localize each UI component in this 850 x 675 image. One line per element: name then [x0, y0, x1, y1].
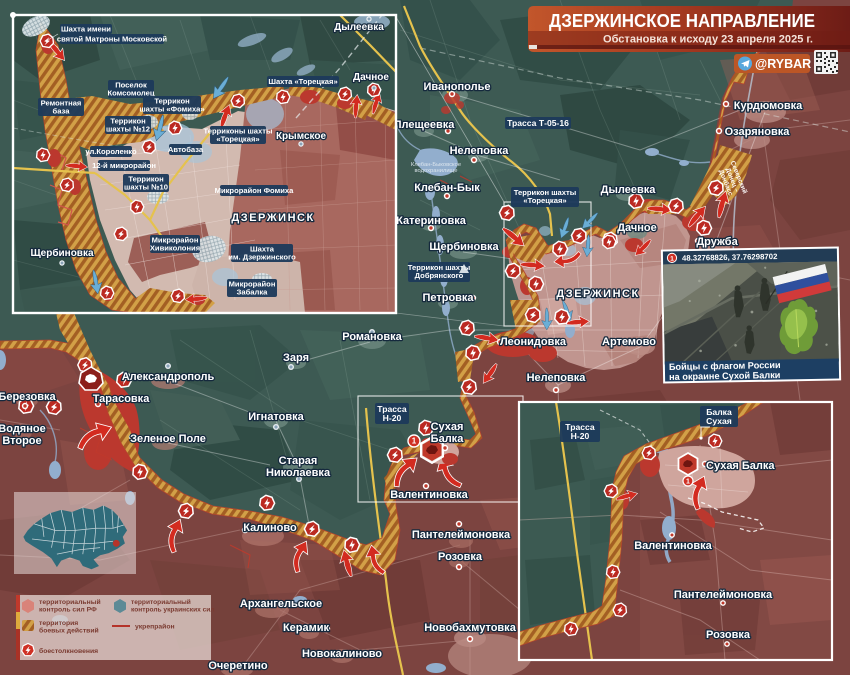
svg-text:ДЗЕРЖИНСК: ДЗЕРЖИНСК — [556, 288, 639, 300]
svg-text:Старая: Старая — [279, 455, 318, 467]
svg-text:Калиново: Калиново — [243, 522, 297, 534]
svg-text:Новобахмутовка: Новобахмутовка — [424, 622, 517, 634]
svg-text:Пантелеймоновка: Пантелеймоновка — [412, 529, 511, 541]
svg-text:Романовка: Романовка — [342, 331, 402, 343]
svg-text:контроль сил РФ: контроль сил РФ — [39, 607, 97, 614]
svg-text:Курдюмовка: Курдюмовка — [734, 100, 803, 112]
svg-text:Клебан-Бык: Клебан-Бык — [414, 182, 480, 194]
svg-text:Н-20: Н-20 — [571, 431, 590, 441]
svg-text:Автобаза: Автобаза — [168, 145, 204, 154]
svg-text:Нелеповка: Нелеповка — [450, 145, 510, 157]
svg-text:Сухая Балка: Сухая Балка — [706, 460, 775, 472]
svg-text:Артемово: Артемово — [602, 336, 656, 348]
svg-text:1: 1 — [686, 478, 690, 485]
svg-text:Очеретино: Очеретино — [208, 660, 268, 672]
svg-text:Зеленое Поле: Зеленое Поле — [130, 433, 206, 445]
svg-text:Щербиновка: Щербиновка — [429, 241, 499, 253]
svg-text:ДЗЕРЖИНСКОЕ НАПРАВЛЕНИЕ: ДЗЕРЖИНСКОЕ НАПРАВЛЕНИЕ — [549, 11, 815, 31]
svg-text:«Торецкая»: «Торецкая» — [523, 196, 566, 205]
svg-text:Водяное: Водяное — [0, 423, 46, 435]
svg-text:Второе: Второе — [2, 435, 41, 447]
svg-text:Игнатовка: Игнатовка — [248, 411, 304, 423]
svg-text:Розовка: Розовка — [706, 629, 751, 641]
svg-text:Розовка: Розовка — [438, 551, 483, 563]
svg-text:на окраине Сухой Балки: на окраине Сухой Балки — [669, 370, 781, 382]
svg-text:Дылеевка: Дылеевка — [601, 184, 657, 196]
svg-text:Катериновка: Катериновка — [396, 215, 467, 227]
svg-text:«Торецкая»: «Торецкая» — [216, 135, 259, 144]
svg-text:Шахта «Торецкая»: Шахта «Торецкая» — [268, 77, 337, 86]
svg-text:Микрорайон Фомиха: Микрорайон Фомиха — [215, 186, 294, 195]
svg-text:Керамик: Керамик — [283, 622, 330, 634]
svg-text:1: 1 — [670, 256, 674, 263]
svg-text:территориальный: территориальный — [39, 598, 101, 606]
svg-text:шахты «Фомиха»: шахты «Фомиха» — [139, 105, 204, 114]
svg-text:Дачное: Дачное — [353, 72, 389, 83]
svg-text:12-й микрорайон: 12-й микрорайон — [92, 161, 156, 170]
svg-text:Добрянского: Добрянского — [415, 271, 464, 280]
svg-text:Сухая: Сухая — [706, 416, 732, 426]
svg-text:боестолкновения: боестолкновения — [39, 647, 98, 655]
svg-text:Александрополь: Александрополь — [122, 371, 215, 383]
svg-text:Архангельское: Архангельское — [240, 598, 322, 610]
svg-text:Плещеевка: Плещеевка — [394, 119, 456, 131]
svg-text:Валентиновка: Валентиновка — [390, 489, 468, 501]
svg-text:база: база — [53, 107, 71, 116]
svg-text:боевых действий: боевых действий — [39, 627, 99, 635]
svg-text:Иванополье: Иванополье — [424, 81, 491, 93]
svg-text:Щербиновка: Щербиновка — [30, 247, 93, 259]
svg-text:Обстановка к исходу 23 апреля: Обстановка к исходу 23 апреля 2025 г. — [603, 34, 813, 46]
svg-text:Валентиновка: Валентиновка — [634, 540, 712, 552]
svg-text:контроль украинских сил: контроль украинских сил — [131, 607, 215, 614]
svg-text:территория: территория — [39, 620, 78, 627]
svg-text:Дружба: Дружба — [696, 236, 738, 248]
svg-text:Новокалиново: Новокалиново — [302, 648, 382, 660]
svg-text:шахты №10: шахты №10 — [124, 183, 168, 192]
svg-text:шахты №12: шахты №12 — [106, 125, 150, 134]
svg-text:Озаряновка: Озаряновка — [725, 126, 791, 138]
svg-text:Николаевка: Николаевка — [266, 467, 331, 479]
svg-text:территориальный: территориальный — [131, 598, 191, 606]
svg-text:Дачное: Дачное — [617, 222, 657, 234]
svg-text:Тарасовка: Тарасовка — [93, 393, 151, 405]
svg-text:Хивиколония: Хивиколония — [150, 244, 200, 253]
svg-text:48.32768826, 37.76298702: 48.32768826, 37.76298702 — [682, 252, 778, 263]
svg-text:Пантелеймоновка: Пантелеймоновка — [674, 589, 773, 601]
svg-text:Заря: Заря — [283, 352, 309, 364]
svg-text:Шахта имени: Шахта имени — [61, 25, 111, 34]
svg-text:Н-20: Н-20 — [383, 413, 402, 423]
svg-text:ДЗЕРЖИНСК: ДЗЕРЖИНСК — [231, 212, 314, 224]
svg-text:ул.Короленко: ул.Короленко — [85, 147, 137, 156]
svg-text:Балка: Балка — [431, 433, 465, 445]
svg-text:Трасса Т-05-16: Трасса Т-05-16 — [507, 118, 569, 128]
svg-text:Дылеевка: Дылеевка — [334, 22, 384, 33]
svg-text:Крымское: Крымское — [276, 131, 327, 142]
svg-text:Нелеповка: Нелеповка — [527, 372, 587, 384]
svg-text:Сухая: Сухая — [431, 421, 464, 433]
svg-text:Леонидовка: Леонидовка — [500, 336, 567, 348]
svg-text:1: 1 — [412, 437, 417, 446]
svg-text:водохранилище: водохранилище — [415, 168, 458, 174]
svg-text:Забалка: Забалка — [237, 288, 269, 297]
svg-text:@RYBAR: @RYBAR — [755, 57, 811, 71]
svg-text:укрепрайон: укрепрайон — [135, 623, 175, 631]
svg-text:Березовка: Березовка — [0, 391, 56, 403]
svg-text:святой Матроны Московской: святой Матроны Московской — [57, 35, 168, 44]
svg-text:Петровка: Петровка — [422, 292, 474, 304]
svg-text:им. Дзержинского: им. Дзержинского — [228, 253, 296, 262]
